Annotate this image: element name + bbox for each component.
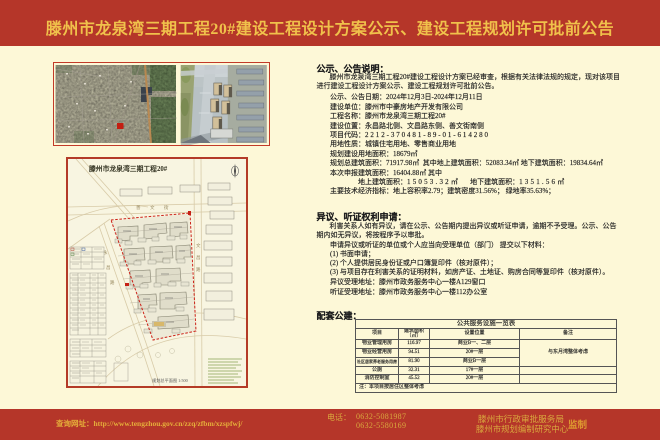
svg-text:滕州市龙泉湾三期工程20#: 滕州市龙泉湾三期工程20#: [89, 164, 168, 173]
svg-text:昌: 昌: [196, 255, 201, 261]
svg-text:昌: 昌: [106, 265, 111, 271]
svg-text:规划总平面图 1:500: 规划总平面图 1:500: [152, 377, 188, 384]
svg-text:文: 文: [196, 242, 201, 249]
svg-text:文: 文: [150, 204, 155, 211]
svg-text:街: 街: [164, 204, 169, 211]
svg-text:路: 路: [110, 279, 115, 286]
svg-text:路: 路: [196, 266, 201, 273]
svg-text:善: 善: [136, 204, 141, 211]
